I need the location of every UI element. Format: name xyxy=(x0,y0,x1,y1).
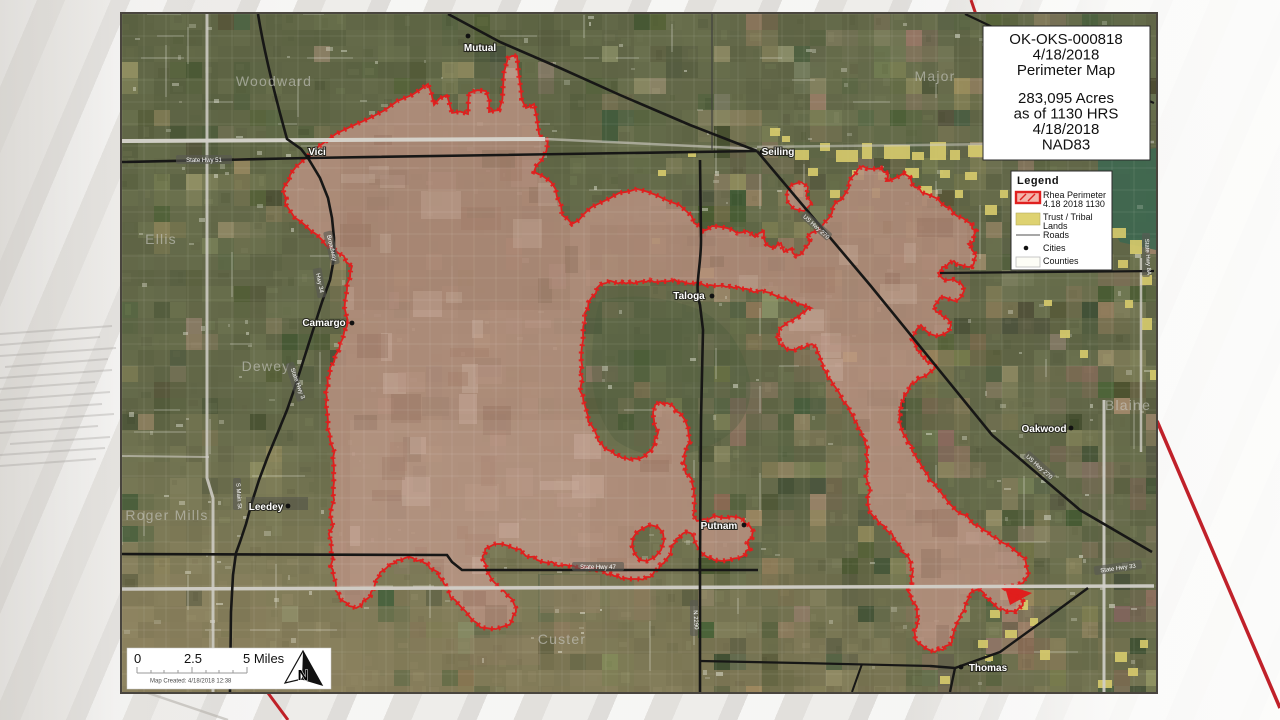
svg-text:Blaine: Blaine xyxy=(1105,397,1151,413)
svg-text:4.18 2018 1130: 4.18 2018 1130 xyxy=(1043,199,1105,209)
svg-text:Counties: Counties xyxy=(1043,256,1079,266)
svg-text:0: 0 xyxy=(134,651,141,666)
svg-text:N: N xyxy=(298,667,309,684)
svg-text:Cities: Cities xyxy=(1043,243,1066,253)
svg-text:as of 1130 HRS: as of 1130 HRS xyxy=(1014,106,1119,123)
svg-text:5 Miles: 5 Miles xyxy=(243,651,285,666)
svg-text:NAD83: NAD83 xyxy=(1042,137,1090,154)
svg-text:Custer: Custer xyxy=(538,631,586,647)
svg-text:283,095 Acres: 283,095 Acres xyxy=(1018,90,1114,107)
svg-text:Leedey: Leedey xyxy=(249,502,284,513)
svg-text:Taloga: Taloga xyxy=(673,291,705,302)
svg-text:Vici: Vici xyxy=(308,147,326,158)
svg-text:Dewey: Dewey xyxy=(242,358,291,374)
svg-text:Putnam: Putnam xyxy=(701,521,738,532)
svg-text:4/18/2018: 4/18/2018 xyxy=(1033,121,1100,138)
svg-text:Woodward: Woodward xyxy=(236,73,312,89)
svg-text:Map Created: 4/18/2018 12:38: Map Created: 4/18/2018 12:38 xyxy=(150,679,232,685)
svg-text:Oakwood: Oakwood xyxy=(1021,424,1066,435)
svg-text:4/18/2018: 4/18/2018 xyxy=(1033,47,1100,64)
svg-text:Perimeter Map: Perimeter Map xyxy=(1017,62,1115,79)
svg-text:Mutual: Mutual xyxy=(464,43,496,54)
svg-text:Roger Mills: Roger Mills xyxy=(125,507,208,523)
svg-text:State Hwy 47: State Hwy 47 xyxy=(580,565,616,571)
svg-text:State Hwy 51: State Hwy 51 xyxy=(186,158,222,164)
svg-text:Seiling: Seiling xyxy=(762,147,795,158)
svg-text:Major: Major xyxy=(914,68,955,84)
svg-text:OK-OKS-000818: OK-OKS-000818 xyxy=(1009,31,1122,48)
svg-text:Thomas: Thomas xyxy=(969,663,1008,674)
svg-text:Legend: Legend xyxy=(1017,175,1059,187)
svg-text:Ellis: Ellis xyxy=(145,231,177,247)
svg-text:Roads: Roads xyxy=(1043,230,1070,240)
svg-text:2.5: 2.5 xyxy=(184,651,202,666)
svg-text:Camargo: Camargo xyxy=(302,318,345,329)
